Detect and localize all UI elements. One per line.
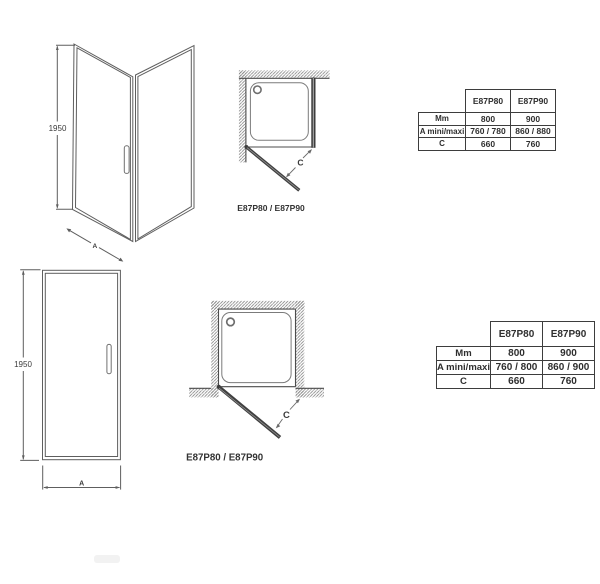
svg-text:A: A <box>79 481 84 488</box>
svg-text:A: A <box>92 243 97 250</box>
svg-text:E87P80 / E87P90: E87P80 / E87P90 <box>237 203 305 213</box>
svg-text:1950: 1950 <box>49 124 67 133</box>
svg-text:E87P80 / E87P90: E87P80 / E87P90 <box>186 453 263 464</box>
svg-text:1950: 1950 <box>14 360 32 369</box>
svg-text:C: C <box>283 410 290 421</box>
svg-text:C: C <box>297 157 303 167</box>
